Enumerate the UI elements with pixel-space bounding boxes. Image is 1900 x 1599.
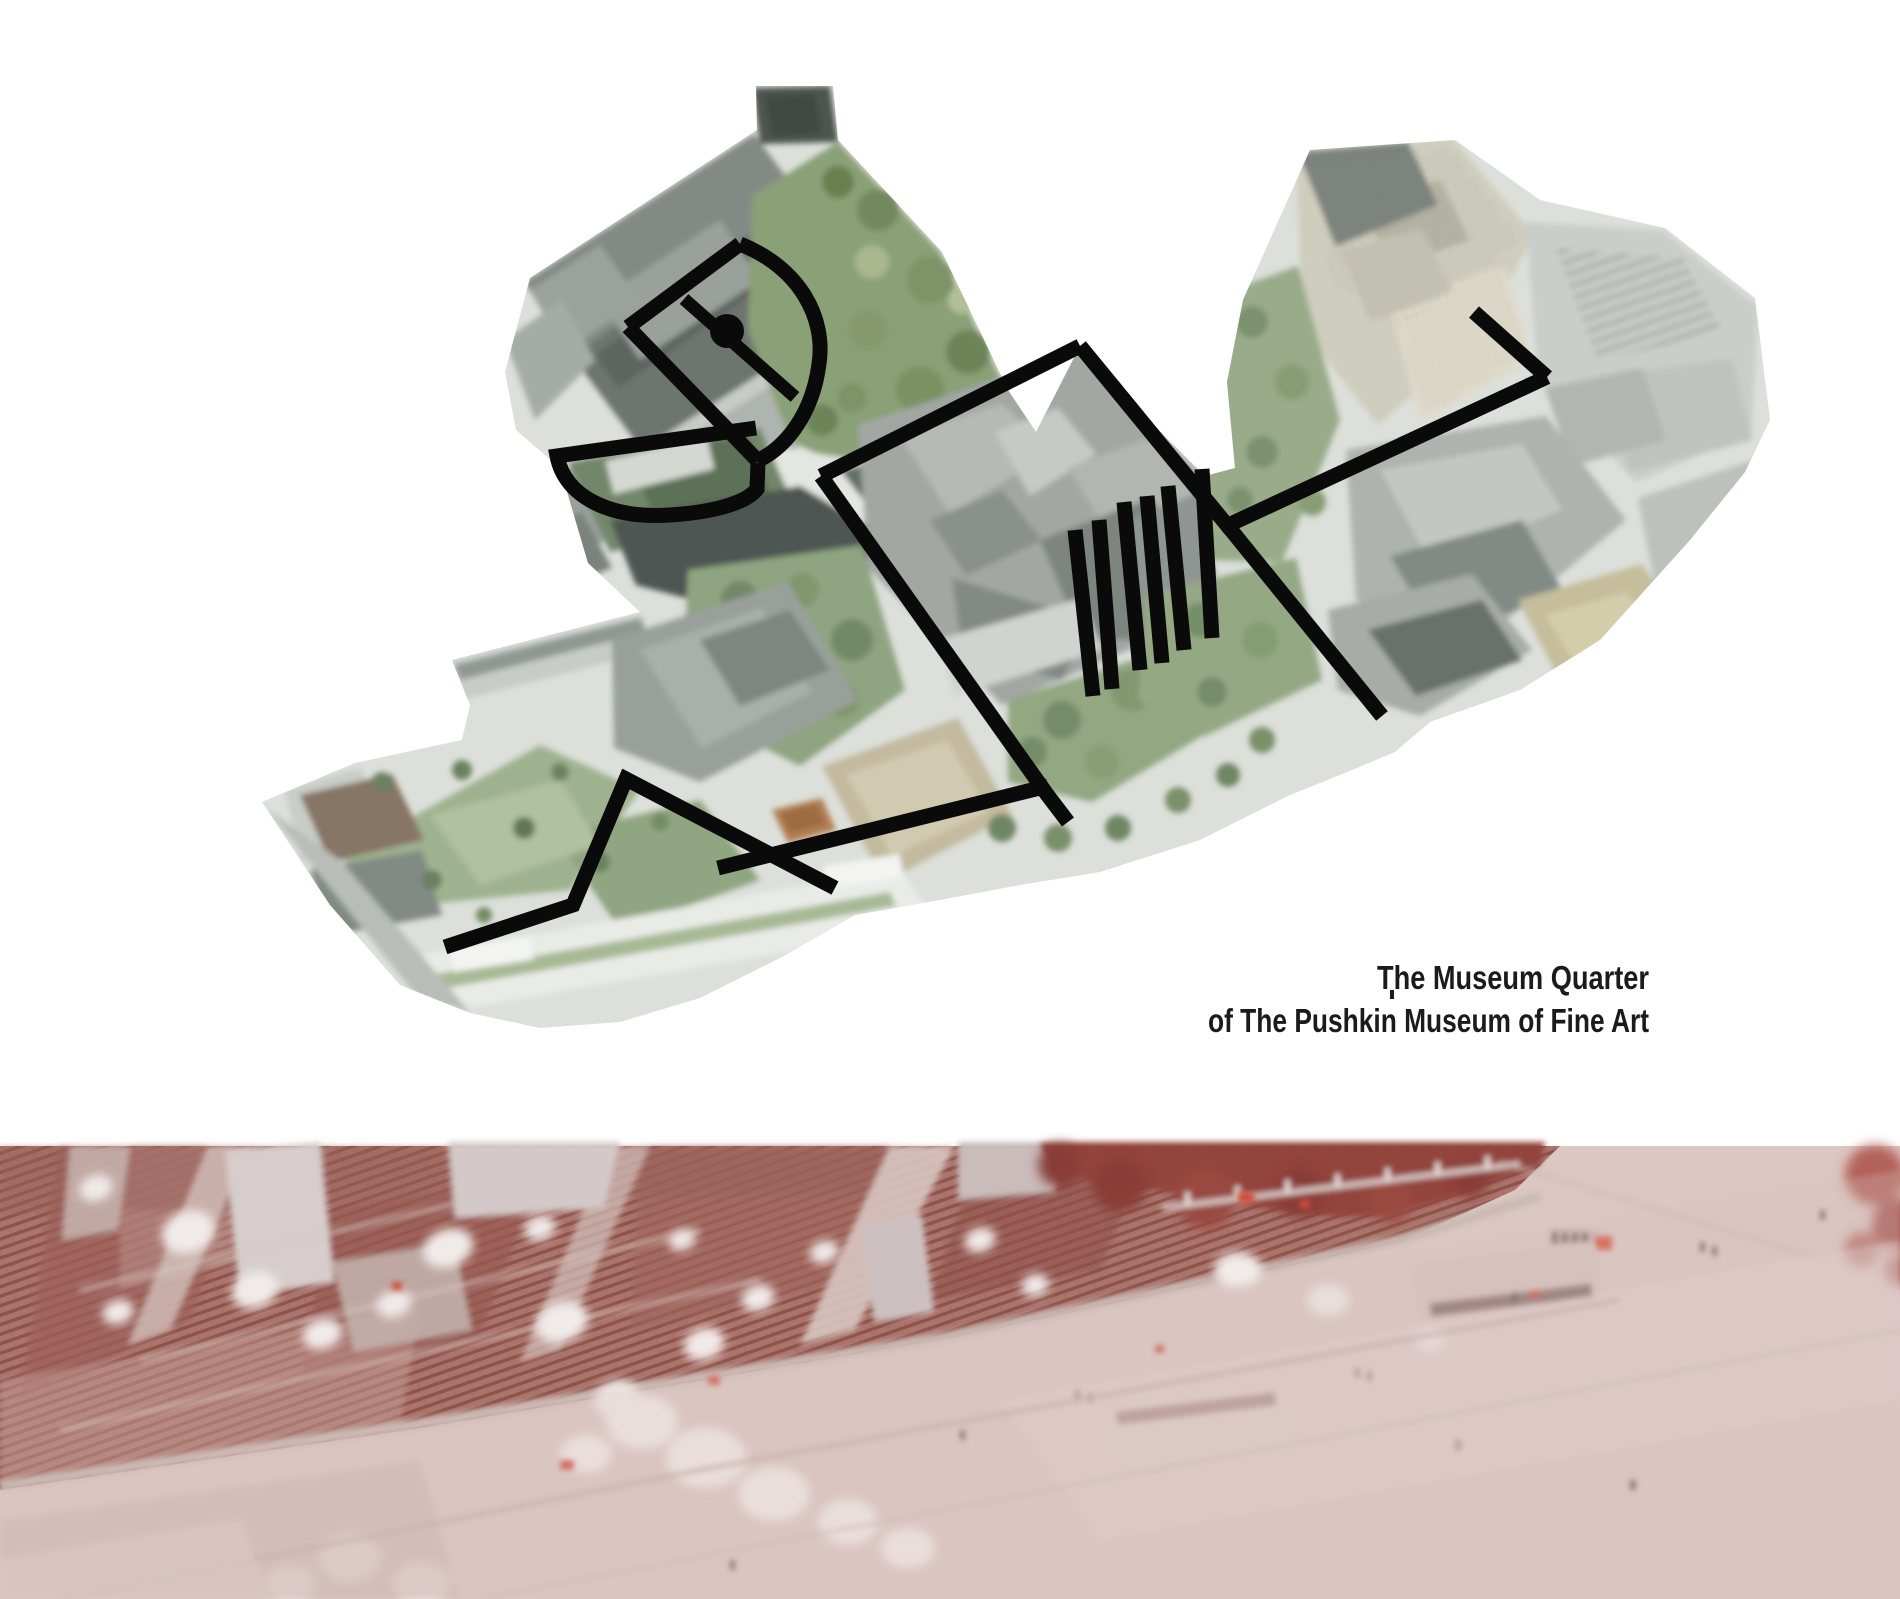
svg-text:of The Pushkin Museum of Fine: of The Pushkin Museum of Fine Art: [1208, 1002, 1649, 1039]
svg-text:The Museum Quarter: The Museum Quarter: [1377, 959, 1649, 996]
